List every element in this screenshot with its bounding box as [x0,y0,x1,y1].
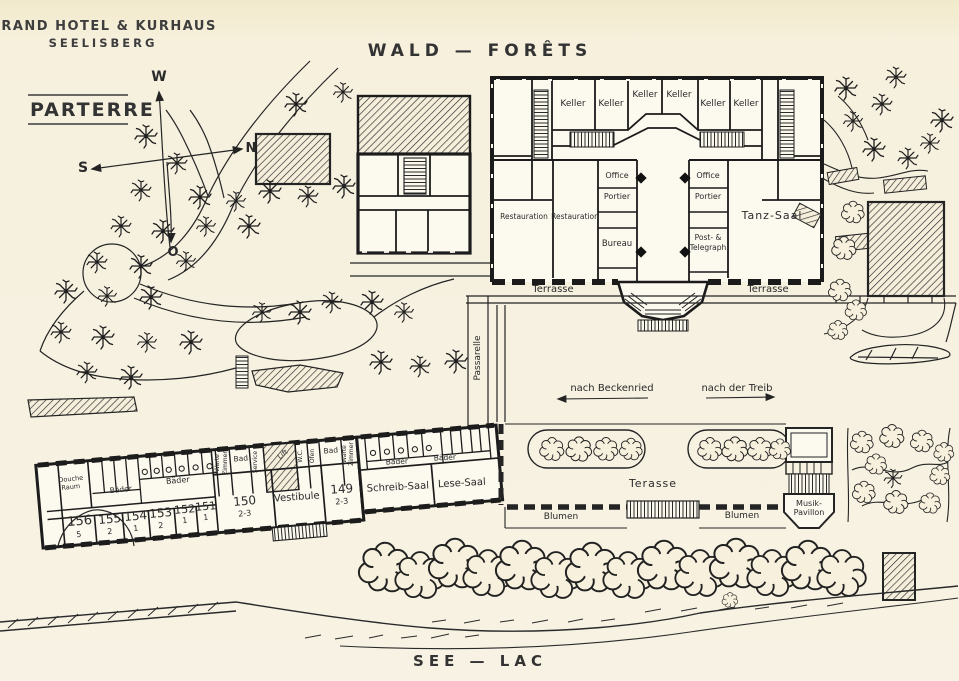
room-keller-2: Keller [598,99,624,109]
room-keller-3: Keller [632,90,658,100]
room-150-cap: 2-3 [238,508,252,518]
plan-canvas: GRAND HOTEL & KURHAUS SEELISBERG WALD — … [0,0,959,681]
room-baeder-4: Bäder [434,452,458,462]
room-portier-right: Portier [695,192,722,201]
room-wc: W.C. [297,449,304,462]
room-154: 154 [124,508,148,524]
compass-w: W [151,69,166,85]
room-153: 153 [149,505,173,521]
room-155-cap: 2 [107,527,113,536]
room-post-telegraph-1: Post- & [695,233,722,242]
garden-steps [236,356,248,388]
floor-label-parterre: PARTERRE [30,99,155,121]
blumen-right: Blumen [725,511,759,521]
detached-building [358,96,470,253]
room-151: 151 [195,499,217,514]
hatched-building-right [868,202,944,296]
room-152: 152 [174,502,196,517]
room-office-right: Office [696,171,719,180]
room-restauration-2: Restauration [551,212,599,221]
room-post-telegraph-2: Telegraph [689,243,727,252]
room-portier-left: Portier [604,192,631,201]
room-152-cap: 1 [182,516,188,525]
hotel-title-line2: SEELISBERG [49,36,158,50]
compass-s: S [78,160,88,176]
room-service: Service [252,451,259,473]
musik-pavillon-1: Musik- [796,499,822,508]
hotel-title-line1: GRAND HOTEL & KURHAUS [0,19,217,34]
room-155: 155 [98,511,122,527]
room-office-left: Office [605,171,628,180]
room-keller-1: Keller [560,99,586,109]
musik-pavillon-2: Pavillon [794,508,825,517]
room-warte-2b: Zimmer [348,442,355,466]
room-keller-4: Keller [666,90,692,100]
room-warte-1a: Warte [214,454,221,472]
terrasse-left: Terrasse [531,284,573,295]
room-baeder-3: Bäder [386,456,410,466]
room-bad-2: Bad [323,445,338,455]
room-156: 156 [67,513,93,530]
blumen-left: Blumen [544,512,578,522]
room-150: 150 [233,493,257,509]
terasse-lower: Terasse [628,477,677,490]
hatched-building-left [256,134,330,184]
room-warte-2a: Warte [341,445,348,463]
room-151-cap: 1 [203,513,209,522]
terrasse-right: Terrasse [746,284,788,295]
room-153-cap: 2 [158,521,164,530]
compass-n: N [246,141,257,156]
room-154-cap: 1 [133,524,139,533]
region-label-see: SEE — LAC [413,652,547,670]
floor-plan-page: GRAND HOTEL & KURHAUS SEELISBERG WALD — … [0,0,959,681]
room-ofen: Ofen [309,449,316,464]
room-keller-6: Keller [733,99,759,109]
room-149: 149 [330,481,354,497]
compass-o: O [167,245,178,260]
room-bureau: Bureau [602,239,632,249]
room-warte-1b: Zimmer [222,451,229,475]
room-156-cap: 5 [76,530,82,539]
direction-beckenried: nach Beckenried [570,383,653,394]
room-keller-5: Keller [700,99,726,109]
room-149-cap: 2-3 [335,497,349,507]
room-bad-1: Bad [233,453,248,463]
room-restauration-1: Restauration [500,212,548,221]
direction-treib: nach der Treib [701,383,772,394]
region-label-wald: WALD — FORÊTS [368,39,593,61]
passarelle: Passarelle [473,335,483,380]
room-tanz-saal: Tanz-Saal [741,209,803,222]
